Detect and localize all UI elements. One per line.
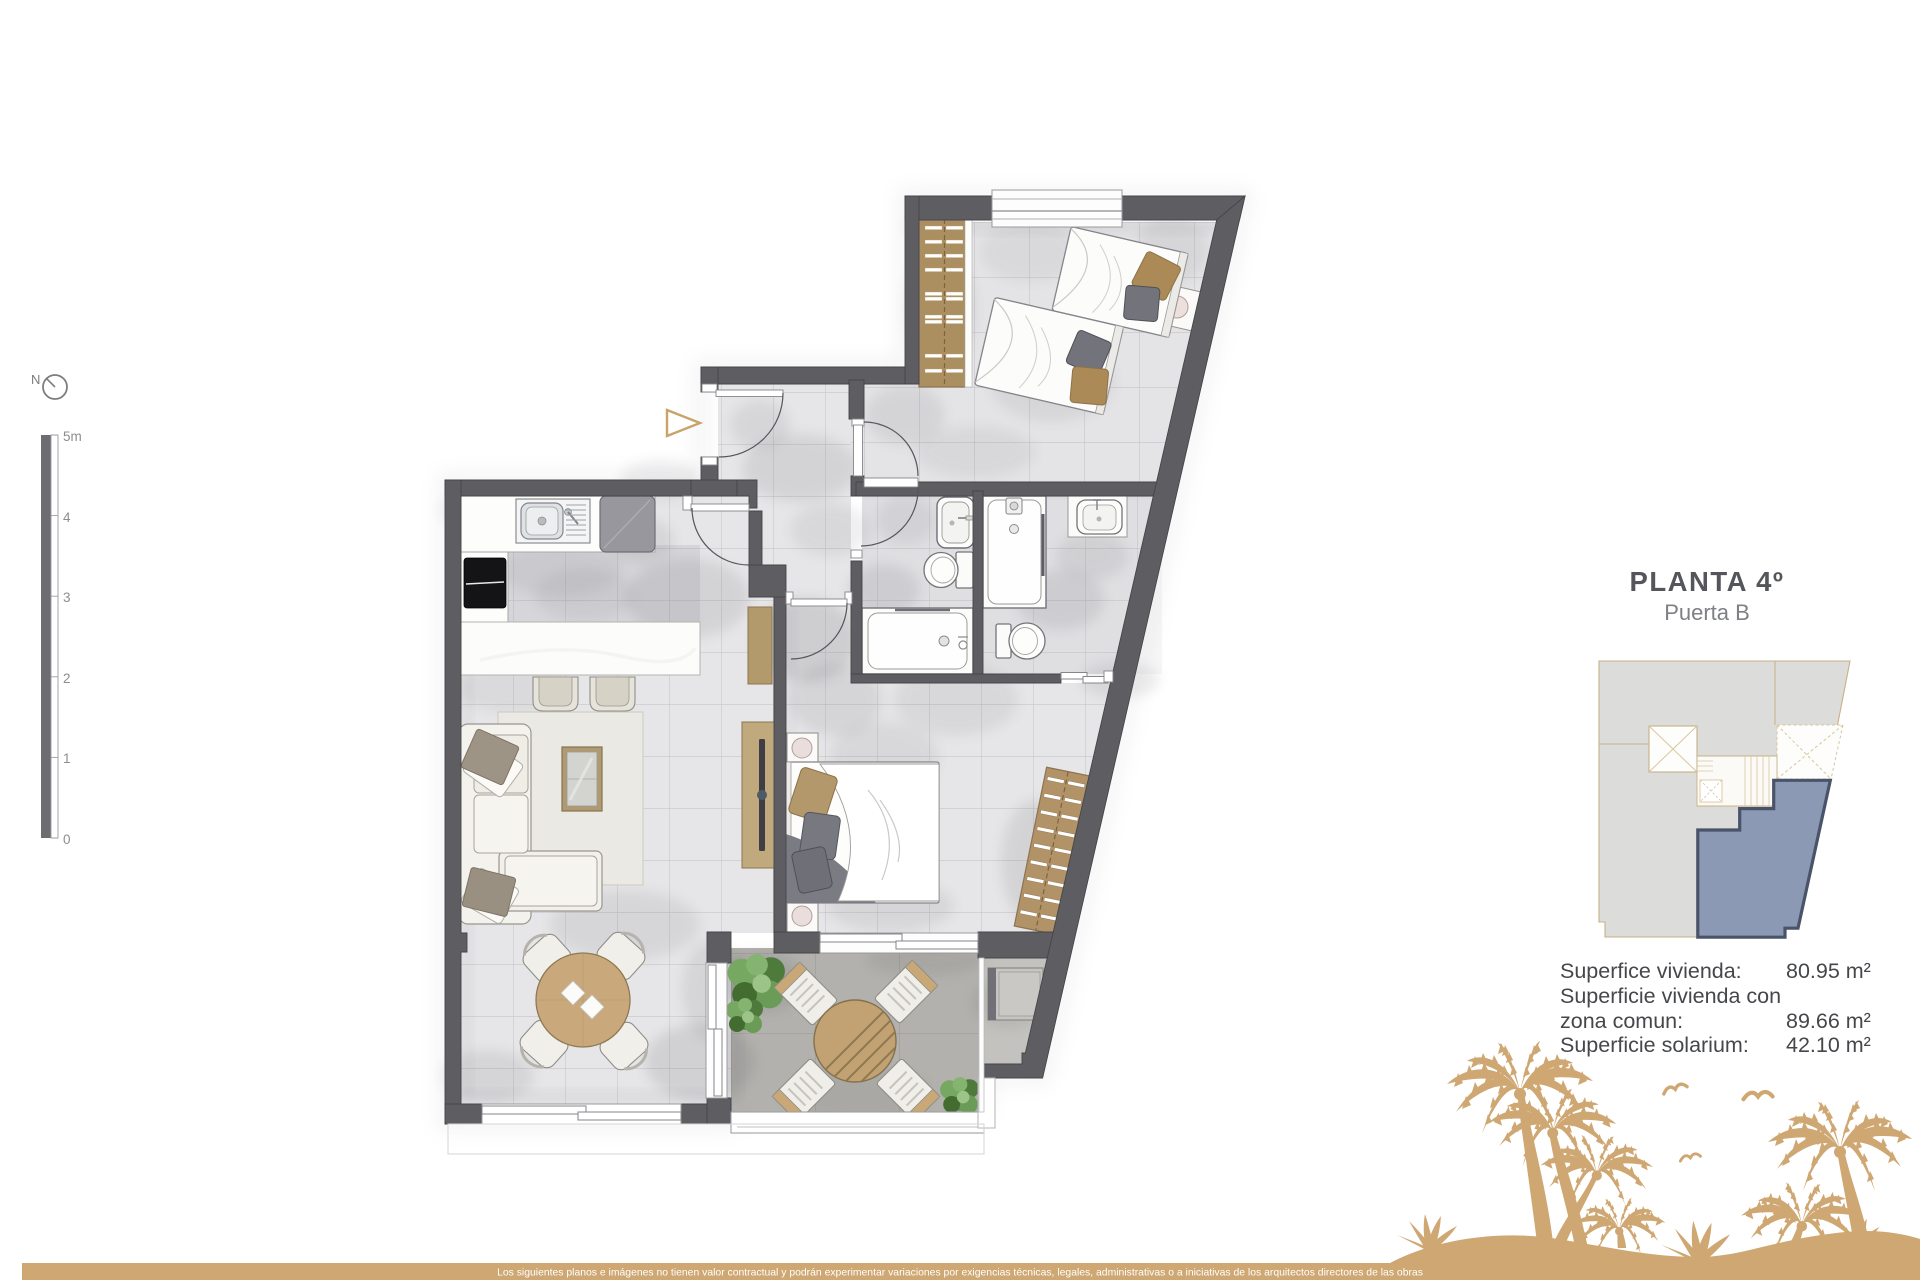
svg-text:89.66 m²: 89.66 m² bbox=[1786, 1009, 1871, 1033]
svg-text:PLANTA 4º: PLANTA 4º bbox=[1630, 566, 1785, 597]
svg-text:Puerta B: Puerta B bbox=[1664, 600, 1750, 625]
svg-text:N: N bbox=[31, 372, 40, 387]
svg-text:1: 1 bbox=[63, 751, 71, 766]
svg-text:80.95 m²: 80.95 m² bbox=[1786, 959, 1871, 983]
svg-text:Superfice vivienda:: Superfice vivienda: bbox=[1560, 959, 1742, 983]
svg-text:42.10 m²: 42.10 m² bbox=[1786, 1033, 1871, 1057]
svg-text:2: 2 bbox=[63, 671, 71, 686]
svg-text:3: 3 bbox=[63, 590, 71, 605]
svg-text:0: 0 bbox=[63, 832, 71, 847]
svg-text:Superficie solarium:: Superficie solarium: bbox=[1560, 1033, 1749, 1057]
svg-text:5m: 5m bbox=[63, 429, 82, 444]
svg-text:zona comun:: zona comun: bbox=[1560, 1009, 1683, 1033]
svg-text:4: 4 bbox=[63, 510, 71, 525]
svg-text:Los siguientes planos e imágen: Los siguientes planos e imágenes no tien… bbox=[497, 1268, 1423, 1279]
svg-text:Superficie vivienda con: Superficie vivienda con bbox=[1560, 984, 1781, 1008]
